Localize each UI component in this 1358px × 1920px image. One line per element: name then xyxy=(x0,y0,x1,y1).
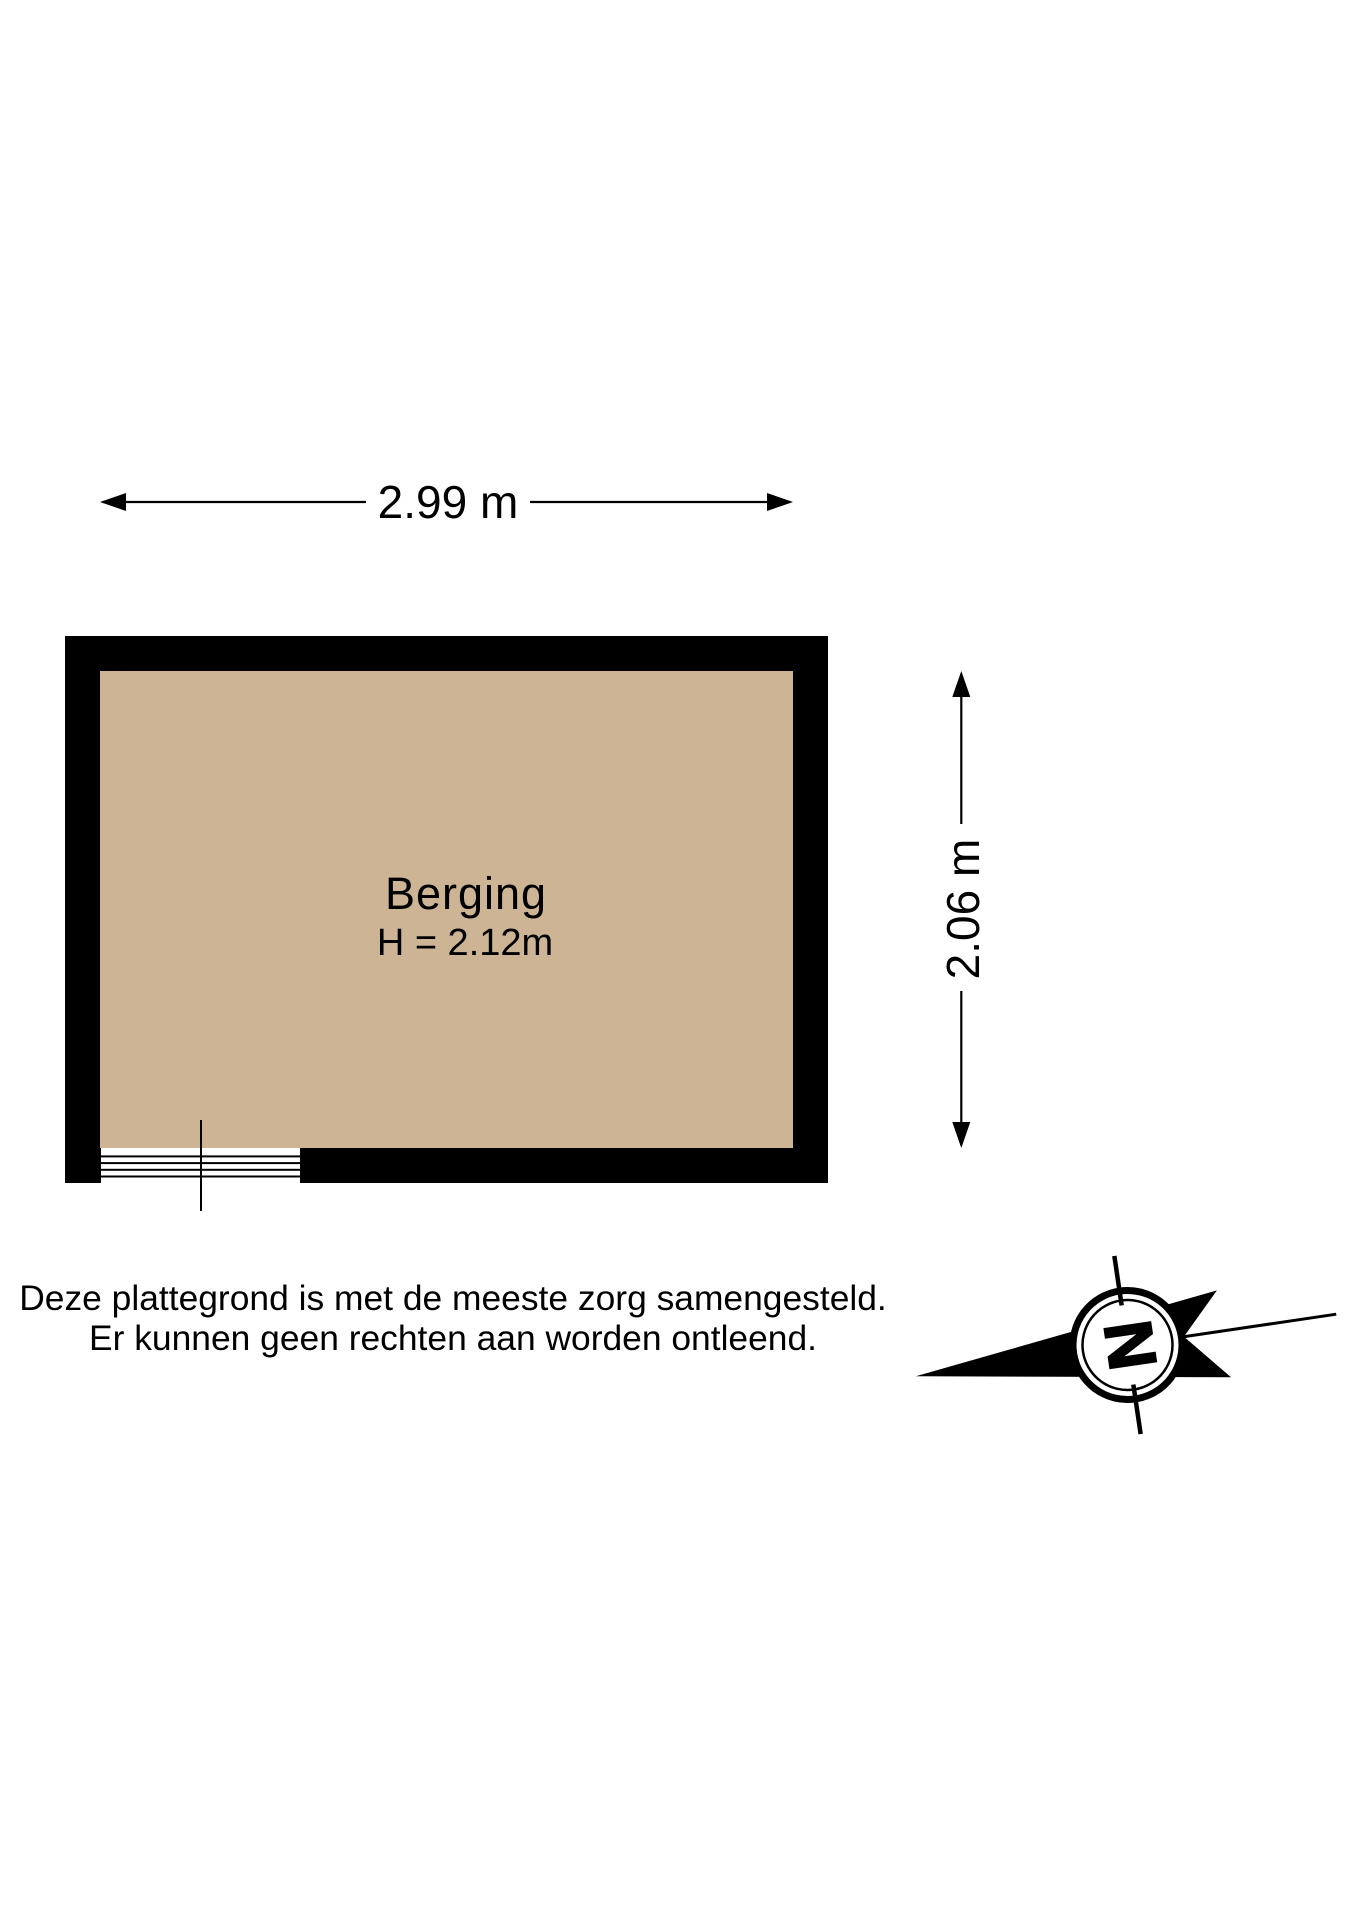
svg-text:Berging: Berging xyxy=(385,868,547,919)
svg-text:2.06 m: 2.06 m xyxy=(937,839,989,980)
svg-text:H = 2.12m: H = 2.12m xyxy=(377,922,553,964)
svg-text:Er kunnen geen rechten aan wor: Er kunnen geen rechten aan worden ontlee… xyxy=(89,1318,817,1358)
svg-text:2.99 m: 2.99 m xyxy=(378,476,519,528)
svg-text:Deze plattegrond is met de mee: Deze plattegrond is met de meeste zorg s… xyxy=(19,1278,887,1318)
